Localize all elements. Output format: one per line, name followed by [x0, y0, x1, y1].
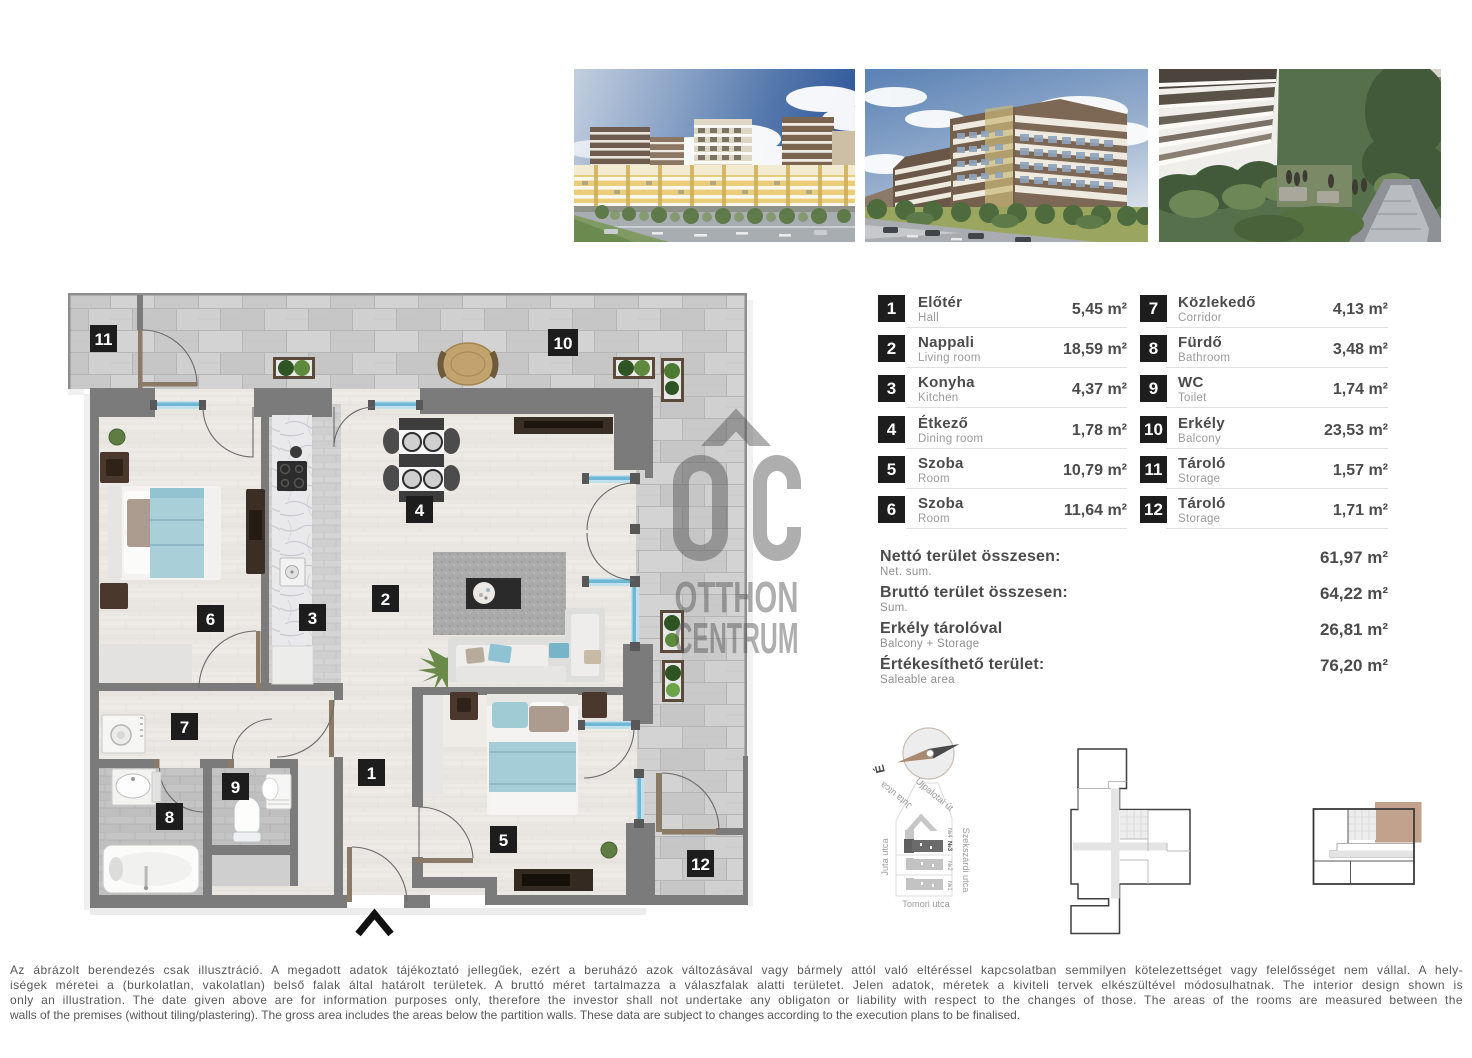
svg-text:Juta utca: Juta utca [878, 779, 914, 811]
svg-text:№3: №3 [946, 841, 953, 852]
svg-text:Juta utca: Juta utca [880, 837, 890, 875]
svg-text:11: 11 [95, 330, 113, 349]
svg-text:5: 5 [499, 831, 508, 850]
svg-text:É: É [871, 763, 887, 774]
svg-text:9: 9 [231, 778, 240, 797]
svg-text:CENTRUM: CENTRUM [675, 614, 799, 663]
svg-text:6: 6 [206, 610, 215, 629]
svg-text:10: 10 [554, 334, 573, 353]
svg-text:8: 8 [165, 808, 174, 827]
svg-text:№2: №2 [946, 861, 953, 871]
svg-text:3: 3 [308, 609, 317, 628]
svg-text:Szekszárdi utca: Szekszárdi utca [961, 828, 971, 894]
svg-text:Tomori utca: Tomori utca [902, 899, 950, 909]
svg-text:1: 1 [367, 764, 376, 783]
svg-text:№4: №4 [946, 828, 953, 838]
svg-text:№1: №1 [946, 881, 953, 891]
svg-text:2: 2 [381, 590, 390, 609]
svg-text:4: 4 [415, 501, 425, 520]
svg-text:7: 7 [180, 718, 189, 737]
svg-text:Újpalotai út: Újpalotai út [914, 776, 956, 813]
svg-text:12: 12 [691, 855, 710, 874]
